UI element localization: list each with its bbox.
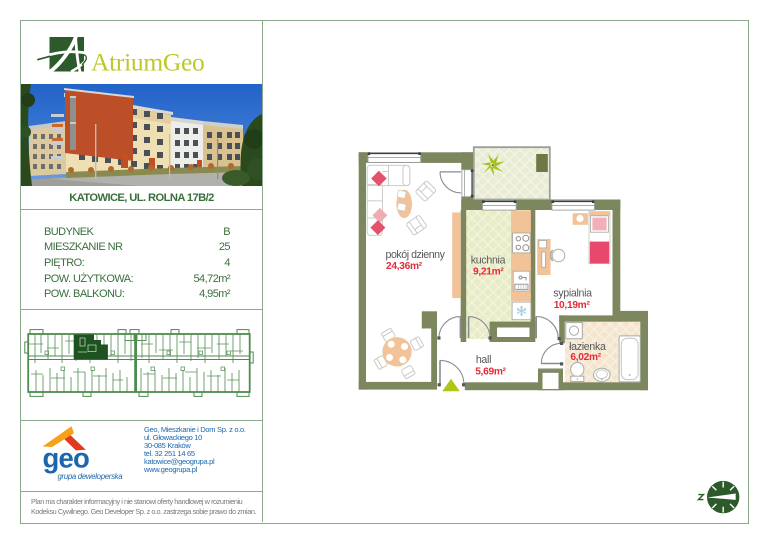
svg-text:sypialnia: sypialnia bbox=[553, 288, 592, 300]
svg-text:24,36m²: 24,36m² bbox=[386, 261, 423, 272]
svg-text:5,69m²: 5,69m² bbox=[475, 367, 506, 378]
svg-text:kuchnia: kuchnia bbox=[471, 255, 506, 267]
svg-text:10,19m²: 10,19m² bbox=[554, 300, 591, 311]
svg-text:hall: hall bbox=[476, 354, 491, 366]
svg-text:6,02m²: 6,02m² bbox=[570, 352, 601, 363]
svg-text:9,21m²: 9,21m² bbox=[473, 266, 504, 277]
svg-text:pokój dzienny: pokój dzienny bbox=[386, 249, 446, 261]
